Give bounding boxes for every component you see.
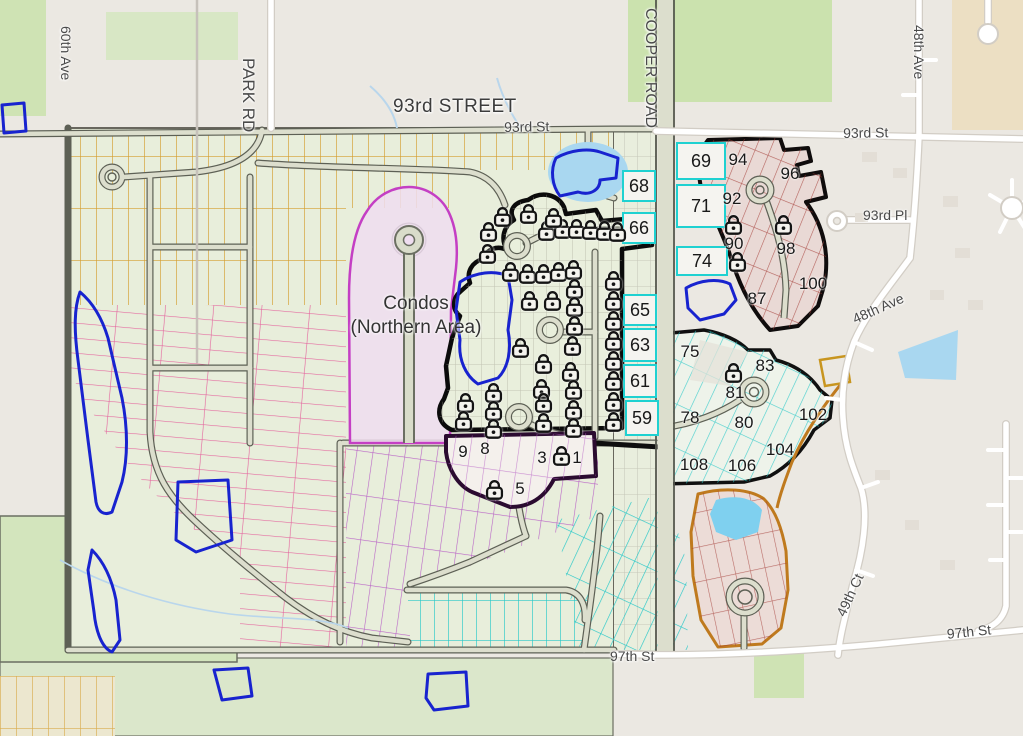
lot-102[interactable]: 102 (789, 403, 837, 427)
street-label-60th-ave: 60th Ave (58, 26, 74, 80)
lot-106[interactable]: 106 (716, 454, 768, 478)
lot-63[interactable]: 63 (623, 328, 657, 362)
street-label-97th-st-w: 97th St (610, 648, 654, 664)
lot-61[interactable]: 61 (623, 364, 657, 398)
lot-92[interactable]: 92 (714, 187, 750, 211)
lot-94[interactable]: 94 (720, 148, 756, 172)
lot-3[interactable]: 3 (531, 446, 553, 470)
lot-8[interactable]: 8 (474, 437, 496, 461)
lot-87[interactable]: 87 (739, 287, 775, 311)
street-label-cooper-road: COOPER ROAD (641, 8, 659, 128)
lot-80[interactable]: 80 (726, 411, 762, 435)
se-pod (691, 490, 788, 648)
map-canvas[interactable]: 60th AvePARK RD93rd STREET93rd StCOOPER … (0, 0, 1023, 736)
street-label-93rd-st-w: 93rd St (504, 118, 549, 135)
street-label-park-rd: PARK RD (238, 58, 258, 132)
cyan-row-region (408, 592, 588, 650)
lot-90[interactable]: 90 (716, 232, 752, 256)
street-label-93rd-pl: 93rd Pl (863, 207, 907, 223)
lot-5[interactable]: 5 (509, 477, 531, 501)
lot-108[interactable]: 108 (668, 453, 720, 477)
lot-66[interactable]: 66 (622, 212, 656, 244)
lot-9[interactable]: 9 (452, 440, 474, 464)
lot-98[interactable]: 98 (768, 237, 804, 261)
area-label-condos-northern-area: Condos(Northern Area) (336, 292, 496, 340)
lot-68[interactable]: 68 (622, 170, 656, 202)
lot-83[interactable]: 83 (747, 354, 783, 378)
street-label-48th-ave-n: 48th Ave (911, 25, 927, 79)
lot-78[interactable]: 78 (672, 406, 708, 430)
lot-1[interactable]: 1 (566, 446, 588, 470)
lot-100[interactable]: 100 (790, 272, 836, 296)
street-label-93rd-street: 93rd STREET (393, 96, 517, 118)
lot-59[interactable]: 59 (625, 400, 659, 436)
lot-65[interactable]: 65 (623, 294, 657, 326)
street-label-93rd-st-e: 93rd St (843, 124, 888, 141)
lot-75[interactable]: 75 (672, 340, 708, 364)
lot-69[interactable]: 69 (676, 142, 726, 180)
lot-96[interactable]: 96 (772, 162, 808, 186)
lot-81[interactable]: 81 (717, 381, 753, 405)
